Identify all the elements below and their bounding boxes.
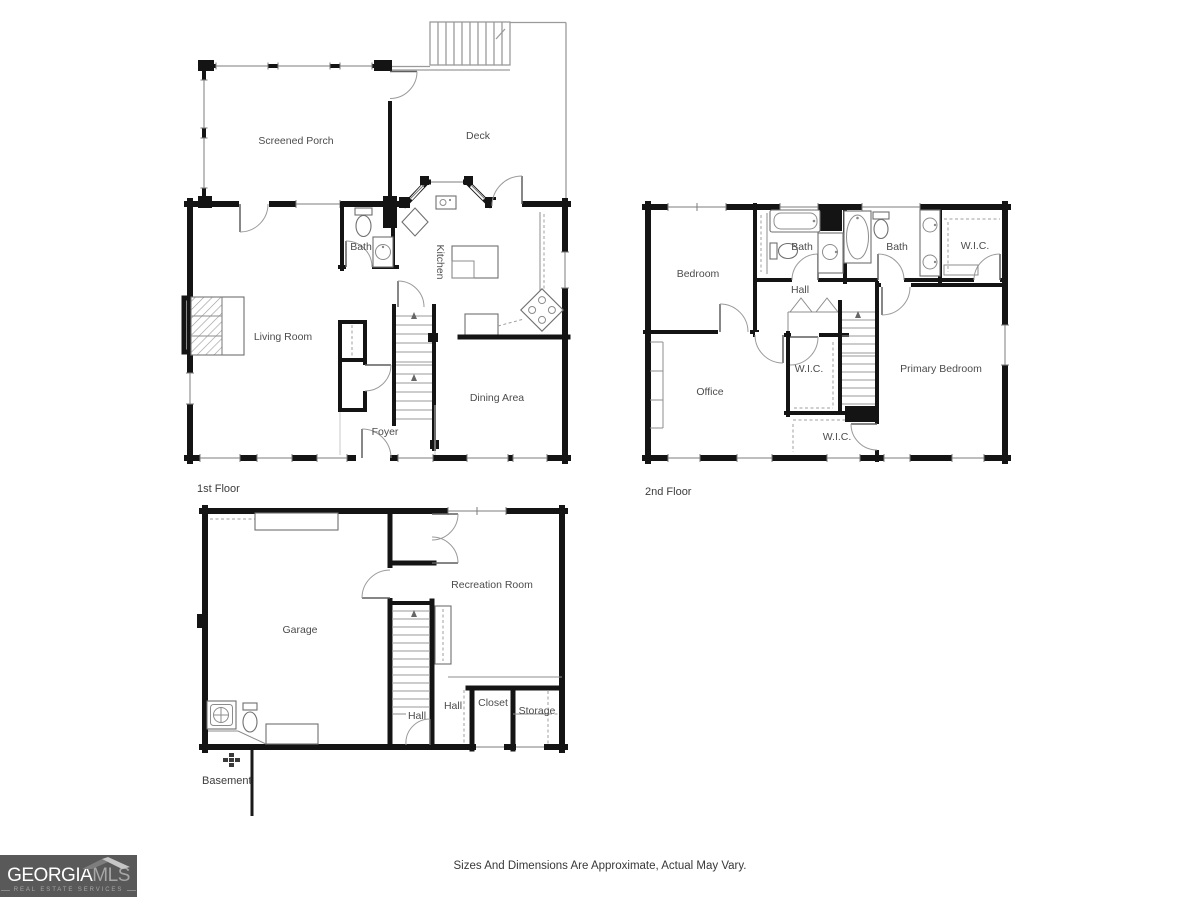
porch-deck-door bbox=[390, 72, 417, 99]
tagline-rule-right bbox=[127, 890, 136, 891]
room-label-hall-basement: Hall bbox=[444, 700, 462, 712]
stove-icon bbox=[521, 289, 563, 331]
toilet-icon bbox=[355, 208, 372, 237]
tagline-text: REAL ESTATE SERVICES bbox=[14, 887, 123, 893]
room-label-bath-right: Bath bbox=[886, 241, 908, 253]
room-label-garage: Garage bbox=[282, 624, 317, 636]
room-label-wic-middle: W.I.C. bbox=[795, 363, 824, 375]
room-label-living-room: Living Room bbox=[254, 331, 313, 343]
room-label-office: Office bbox=[696, 386, 723, 398]
room-label-bath-first: Bath bbox=[350, 241, 372, 253]
room-label-hall-stairs: Hall bbox=[408, 710, 426, 722]
room-label-bath-left: Bath bbox=[791, 241, 813, 253]
bathtub-icon bbox=[770, 210, 820, 232]
stairs-icon-second bbox=[842, 311, 875, 404]
dining-wall-stub bbox=[428, 333, 438, 342]
soaking-tub-icon bbox=[844, 211, 871, 263]
utility-sink-icon bbox=[207, 701, 236, 729]
kitchen-fixtures bbox=[402, 196, 563, 335]
garage-stair-door bbox=[362, 570, 390, 598]
sink-icon-bath-left bbox=[818, 233, 843, 273]
rec-room-double-doors bbox=[432, 514, 458, 563]
logo-tagline: REAL ESTATE SERVICES bbox=[1, 887, 136, 893]
fireplace-icon bbox=[184, 297, 244, 355]
room-label-screened-porch: Screened Porch bbox=[258, 135, 333, 147]
porch-living-door bbox=[240, 204, 268, 232]
room-label-wic-top: W.I.C. bbox=[961, 240, 990, 252]
second-floor-plan: Bedroom Bath Bath W.I.C. Hall Office W.I… bbox=[645, 203, 1009, 498]
room-label-bedroom: Bedroom bbox=[677, 268, 720, 280]
disclaimer-text: Sizes And Dimensions Are Approximate, Ac… bbox=[0, 860, 1200, 872]
floorplan-page: Screened Porch Deck Bath Kitchen Living … bbox=[0, 0, 1200, 900]
floor-label-basement: Basement bbox=[202, 775, 252, 787]
stairs-icon bbox=[394, 306, 439, 449]
tagline-rule-left bbox=[1, 890, 10, 891]
garage-door-icon bbox=[210, 513, 338, 530]
room-label-recreation-room: Recreation Room bbox=[451, 579, 533, 591]
room-label-deck: Deck bbox=[466, 130, 491, 142]
floor-label-first: 1st Floor bbox=[197, 483, 240, 495]
screened-porch-walls bbox=[198, 60, 397, 208]
storage-shelving bbox=[513, 691, 559, 744]
double-sink-icon bbox=[920, 210, 940, 276]
toilet-icon-bath-right bbox=[873, 212, 889, 239]
room-label-foyer: Foyer bbox=[372, 426, 399, 438]
stairs-icon-basement bbox=[392, 610, 430, 707]
bath-sink-icon bbox=[373, 237, 393, 267]
room-label-closet: Closet bbox=[478, 697, 508, 709]
basement-plan: Garage Recreation Room Hall Hall Closet … bbox=[197, 507, 565, 816]
plan-marker-icon bbox=[223, 753, 240, 767]
stair-hall-door bbox=[398, 281, 424, 307]
first-floor-plan: Screened Porch Deck Bath Kitchen Living … bbox=[184, 22, 569, 495]
room-label-wic-lower: W.I.C. bbox=[823, 431, 852, 443]
rec-room-shelf bbox=[435, 606, 451, 664]
room-label-dining-area: Dining Area bbox=[470, 392, 524, 404]
hall-closets bbox=[340, 322, 391, 410]
deck-stairs-icon bbox=[430, 22, 510, 65]
office-shelving bbox=[650, 342, 663, 428]
toilet-icon-basement bbox=[243, 703, 257, 732]
floor-label-second: 2nd Floor bbox=[645, 486, 692, 498]
room-label-storage: Storage bbox=[519, 705, 556, 717]
room-label-primary-bedroom: Primary Bedroom bbox=[900, 363, 982, 375]
room-label-kitchen: Kitchen bbox=[434, 244, 446, 279]
room-label-hall-second: Hall bbox=[791, 284, 809, 296]
floorplan-drawing: Screened Porch Deck Bath Kitchen Living … bbox=[0, 0, 1200, 900]
